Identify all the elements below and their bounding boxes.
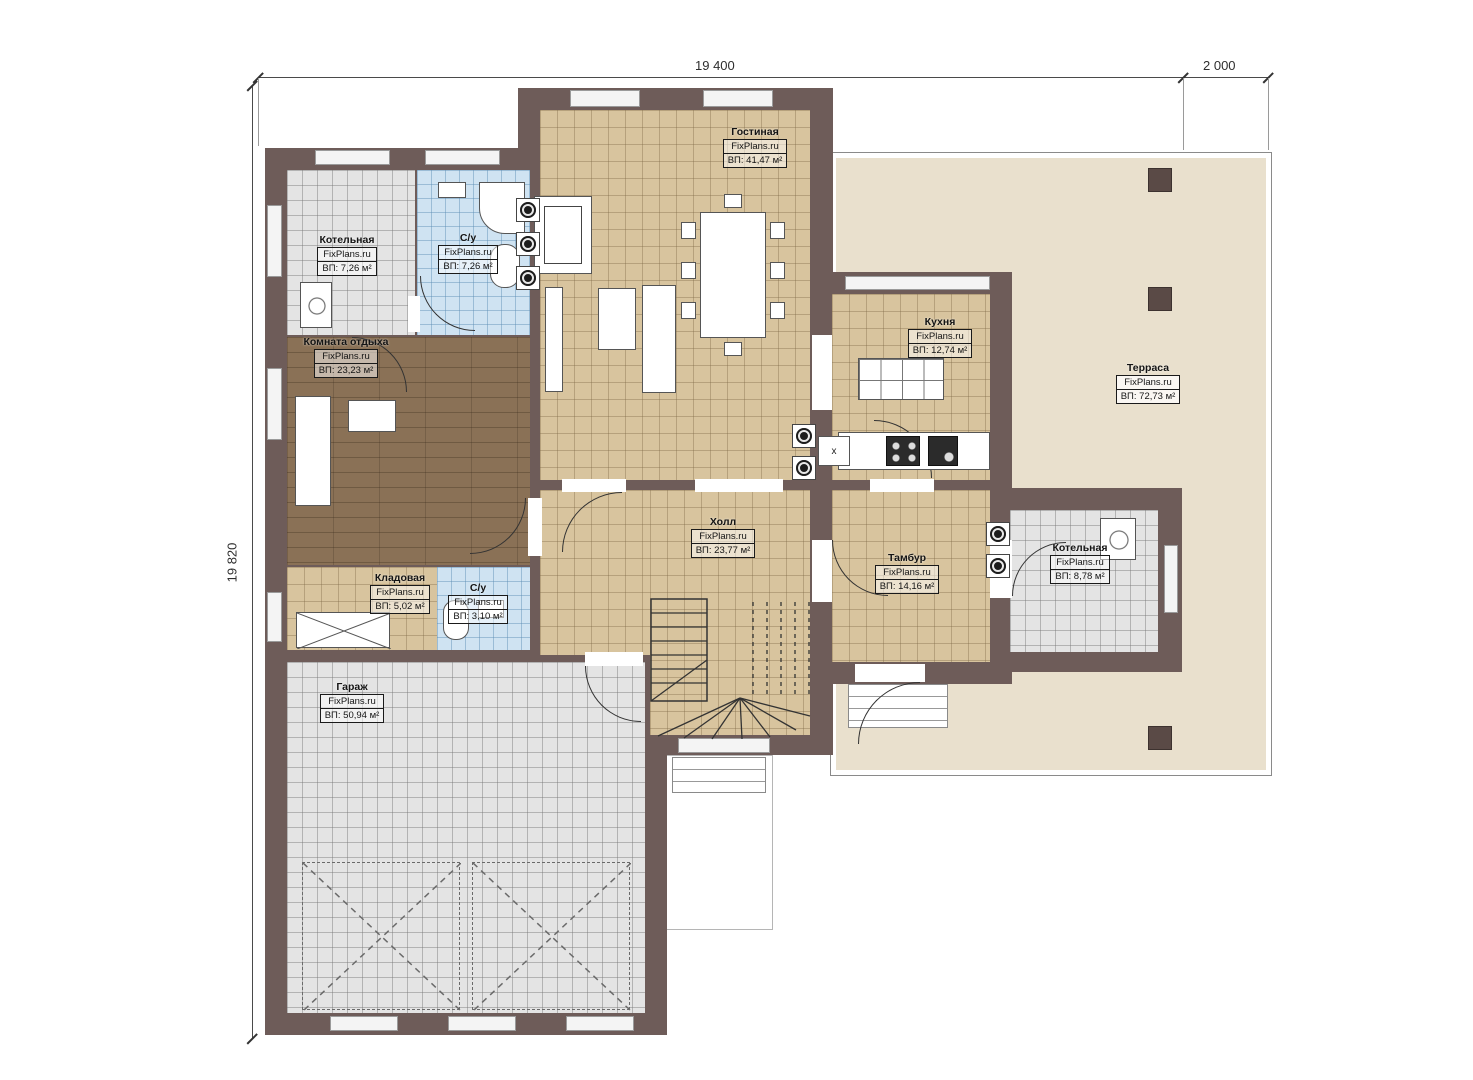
room-name: Кладовая [375, 572, 425, 584]
brand-label: FixPlans.ru [321, 695, 384, 708]
area-label: ВП: 7,26 м² [318, 261, 375, 275]
window [448, 1016, 516, 1031]
window [1164, 545, 1178, 613]
label-box: FixPlans.ru ВП: 7,26 м² [438, 245, 497, 274]
chimney-flue [516, 198, 540, 222]
terrace-post [1148, 168, 1172, 192]
label-box: FixPlans.ru ВП: 3,10 м² [448, 595, 507, 624]
chair [681, 222, 696, 239]
area-label: ВП: 7,26 м² [439, 259, 496, 273]
kitchen-island [858, 358, 944, 400]
brand-label: FixPlans.ru [876, 566, 939, 579]
door-opening [562, 479, 626, 492]
brand-label: FixPlans.ru [449, 596, 506, 609]
dimension-line-left [252, 85, 253, 1038]
area-label: ВП: 23,77 м² [692, 543, 755, 557]
chimney-flue [516, 266, 540, 290]
chair [770, 302, 785, 319]
dimension-extension [1183, 78, 1184, 150]
room-name: Комната отдыха [304, 336, 389, 348]
room-name: Гостиная [731, 126, 778, 138]
room-name: Терраса [1127, 362, 1169, 374]
label-box: FixPlans.ru ВП: 72,73 м² [1116, 375, 1181, 404]
area-label: ВП: 5,02 м² [371, 599, 428, 613]
brand-label: FixPlans.ru [1051, 556, 1108, 569]
label-box: FixPlans.ru ВП: 14,16 м² [875, 565, 940, 594]
room-name: Котельная [1053, 542, 1108, 554]
door-opening [585, 652, 643, 666]
window [566, 1016, 634, 1031]
window [315, 150, 390, 165]
room-name: Котельная [320, 234, 375, 246]
chair [681, 262, 696, 279]
lounge-sofa [295, 396, 331, 506]
brand-label: FixPlans.ru [371, 586, 428, 599]
area-label: ВП: 12,74 м² [909, 343, 972, 357]
chair [770, 262, 785, 279]
room-label-bath-small: С/у FixPlans.ru ВП: 3,10 м² [428, 582, 528, 624]
room-label-terrace: Терраса FixPlans.ru ВП: 72,73 м² [1093, 362, 1203, 404]
door-opening [408, 296, 420, 332]
window [845, 276, 990, 290]
chimney-flue [986, 554, 1010, 578]
door-opening [870, 479, 934, 492]
dimension-extension [1268, 78, 1269, 150]
label-box: FixPlans.ru ВП: 23,77 м² [691, 529, 756, 558]
brand-label: FixPlans.ru [318, 248, 375, 261]
window [330, 1016, 398, 1031]
wide-opening [695, 479, 783, 492]
area-label: ВП: 72,73 м² [1117, 389, 1180, 403]
room-label-hall: Холл FixPlans.ru ВП: 23,77 м² [668, 516, 778, 558]
dimension-line-top [258, 77, 1268, 78]
room-name: Кухня [925, 316, 956, 328]
lounge-table [348, 400, 396, 432]
room-label-tambour: Тамбур FixPlans.ru ВП: 14,16 м² [852, 552, 962, 594]
door-opening [812, 540, 832, 602]
room-label-garage: Гараж FixPlans.ru ВП: 50,94 м² [296, 681, 408, 723]
sofa [642, 285, 676, 393]
chair [724, 342, 742, 356]
label-box: FixPlans.ru ВП: 8,78 м² [1050, 555, 1109, 584]
area-label: ВП: 23,23 м² [315, 363, 378, 377]
label-box: FixPlans.ru ВП: 50,94 м² [320, 694, 385, 723]
area-label: ВП: 41,47 м² [724, 153, 787, 167]
dimension-extension [258, 78, 259, 146]
exterior-door-opening [855, 664, 925, 682]
dimension-value-top-right: 2 000 [1203, 58, 1236, 73]
room-label-kitchen: Кухня FixPlans.ru ВП: 12,74 м² [885, 316, 995, 358]
label-box: FixPlans.ru ВП: 7,26 м² [317, 247, 376, 276]
room-name: С/у [470, 582, 486, 594]
window [425, 150, 500, 165]
window [703, 90, 773, 107]
label-box: FixPlans.ru ВП: 41,47 м² [723, 139, 788, 168]
door-opening [528, 498, 542, 556]
brand-label: FixPlans.ru [1117, 376, 1180, 389]
area-label: ВП: 50,94 м² [321, 708, 384, 722]
sofa [545, 287, 563, 392]
room-label-living: Гостиная FixPlans.ru ВП: 41,47 м² [700, 126, 810, 168]
chimney-flue [986, 522, 1010, 546]
sink [438, 182, 466, 198]
entrance-steps [672, 757, 766, 793]
fireplace [534, 196, 592, 274]
gate-cross [303, 863, 461, 1011]
garage-gate-marking [302, 862, 460, 1010]
chair [724, 194, 742, 208]
stove [886, 436, 920, 466]
brand-label: FixPlans.ru [724, 140, 787, 153]
room-name: Гараж [336, 681, 367, 693]
kitchen-cabinet: x [818, 436, 850, 466]
brand-label: FixPlans.ru [909, 330, 972, 343]
label-box: FixPlans.ru ВП: 23,23 м² [314, 349, 379, 378]
label-box: FixPlans.ru ВП: 5,02 м² [370, 585, 429, 614]
entrance-door-opening [678, 738, 770, 753]
window [267, 592, 282, 642]
chimney-flue [792, 456, 816, 480]
label-box: FixPlans.ru ВП: 12,74 м² [908, 329, 973, 358]
brand-label: FixPlans.ru [692, 530, 755, 543]
chimney-flue [516, 232, 540, 256]
kitchen-sink [928, 436, 958, 466]
room-name: С/у [460, 232, 476, 244]
boiler-unit [300, 282, 332, 328]
pantry-shelf [296, 612, 390, 648]
room-name: Тамбур [888, 552, 926, 564]
dimension-value-left: 19 820 [224, 543, 239, 583]
window [570, 90, 640, 107]
window [267, 368, 282, 440]
terrace-post [1148, 726, 1172, 750]
room-label-boiler-top: Котельная FixPlans.ru ВП: 7,26 м² [292, 234, 402, 276]
room-label-bath-top: С/у FixPlans.ru ВП: 7,26 м² [418, 232, 518, 274]
cabinet-mark: x [832, 446, 837, 457]
area-label: ВП: 3,10 м² [449, 609, 506, 623]
room-name: Холл [710, 516, 736, 528]
shelf-cross-lines [297, 613, 391, 649]
window [267, 205, 282, 277]
terrace-post [1148, 287, 1172, 311]
brand-label: FixPlans.ru [315, 350, 378, 363]
dining-table [700, 212, 766, 338]
chair [681, 302, 696, 319]
room-label-lounge: Комната отдыха FixPlans.ru ВП: 23,23 м² [288, 336, 404, 378]
area-label: ВП: 14,16 м² [876, 579, 939, 593]
room-label-boiler-right: Котельная FixPlans.ru ВП: 8,78 м² [1025, 542, 1135, 584]
garage-gate-marking [472, 862, 630, 1010]
door-opening [812, 335, 832, 410]
staircase [650, 598, 812, 740]
gate-cross [473, 863, 631, 1011]
floor-plan: x [0, 0, 1473, 1080]
chimney-flue [792, 424, 816, 448]
brand-label: FixPlans.ru [439, 246, 496, 259]
dimension-value-top-main: 19 400 [695, 58, 735, 73]
sofa [598, 288, 636, 350]
chair [770, 222, 785, 239]
area-label: ВП: 8,78 м² [1051, 569, 1108, 583]
